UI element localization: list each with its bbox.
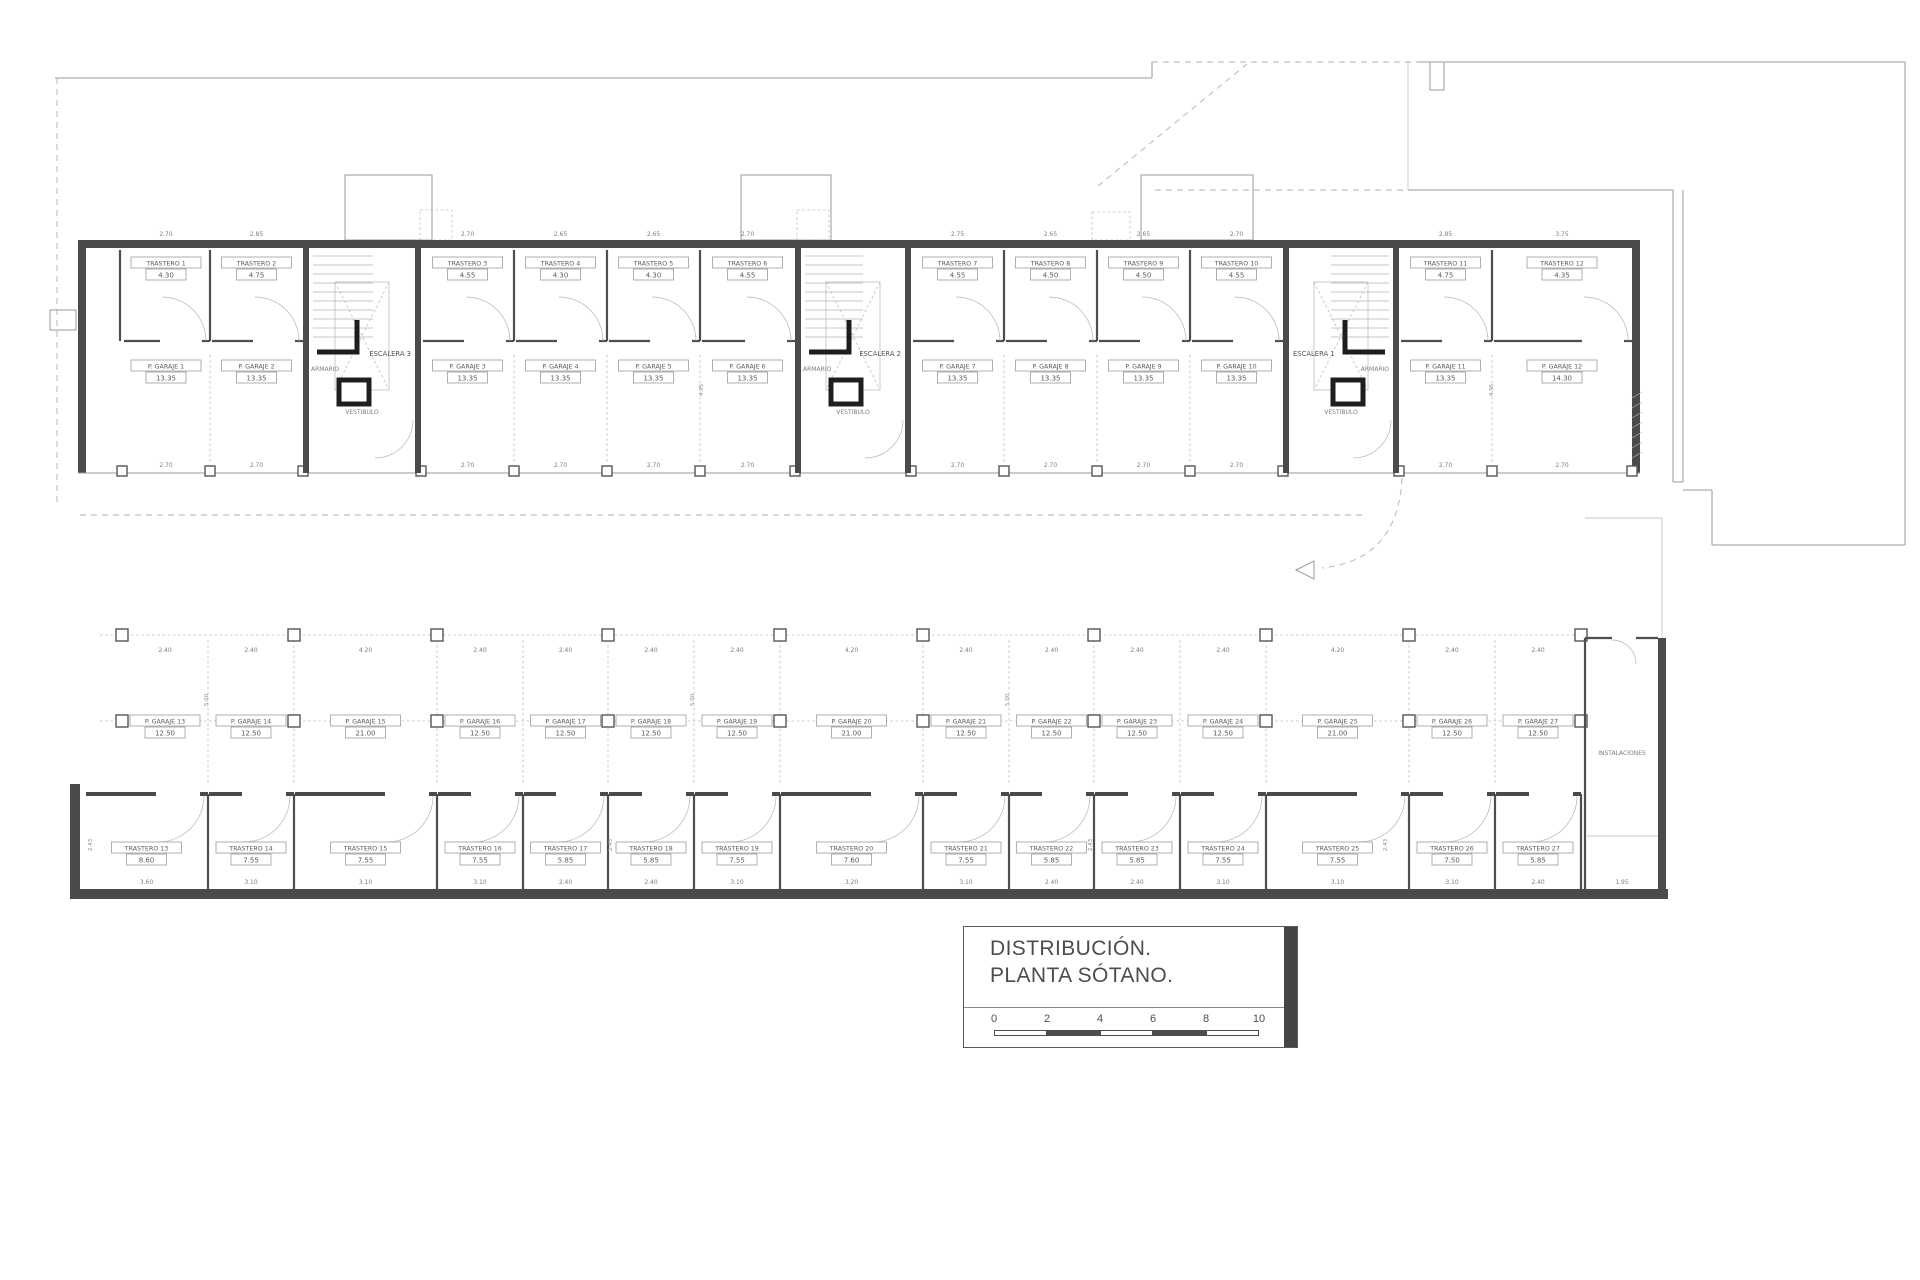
- room-name: P. GARAJE 9: [1125, 363, 1161, 370]
- room-area: 7.60: [844, 857, 860, 865]
- room-name: P. GARAJE 13: [145, 718, 185, 725]
- door-arc: [959, 796, 1005, 842]
- room-area: 21.00: [355, 730, 375, 738]
- dimension-label: 2.65: [1044, 231, 1058, 238]
- room-area: 4.75: [1438, 272, 1454, 280]
- room-area: 4.50: [1136, 272, 1152, 280]
- elevator: [1333, 380, 1363, 404]
- wall: [809, 320, 849, 352]
- door-arc: [1235, 297, 1279, 341]
- room-area: 12.50: [1442, 730, 1462, 738]
- room-area: 4.55: [460, 272, 476, 280]
- room-area: 5.85: [1044, 857, 1060, 865]
- room-area: 4.30: [646, 272, 662, 280]
- room-area: 4.55: [950, 272, 966, 280]
- dimension-label: 2.70: [741, 231, 755, 238]
- dimension-label: 3.60: [140, 879, 154, 886]
- dimension-label: 3.10: [359, 879, 373, 886]
- dimension-label: 2.40: [559, 647, 573, 654]
- pillar: [116, 629, 128, 641]
- pillar: [602, 629, 614, 641]
- room-name: P. GARAJE 3: [449, 363, 485, 370]
- room-area: 7.55: [358, 857, 374, 865]
- room-area: 13.35: [457, 375, 477, 383]
- door-arc: [1612, 640, 1636, 664]
- driving-aisle: [80, 478, 1402, 579]
- dimension-label: 4.20: [1331, 647, 1345, 654]
- room-area: 8.60: [139, 857, 155, 865]
- skylight-dashed: [1092, 212, 1130, 240]
- dimension-label: 2.40: [1531, 647, 1545, 654]
- room-name: TRASTERO 2: [236, 260, 276, 267]
- room-name: P. GARAJE 11: [1425, 363, 1465, 370]
- vestibulo-label: VESTIBULO: [345, 409, 379, 416]
- dimension-label: 2.70: [250, 462, 264, 469]
- room-area: 5.85: [1530, 857, 1546, 865]
- dimension-label: 2.65: [1137, 231, 1151, 238]
- door-arc: [1049, 297, 1093, 341]
- dimension-label: 2.43: [88, 838, 94, 851]
- dimension-label: 2.40: [1130, 879, 1144, 886]
- room-name: TRASTERO 14: [228, 845, 272, 852]
- room-name: TRASTERO 5: [633, 260, 673, 267]
- instalaciones-room: INSTALACIONES1.95: [1585, 518, 1666, 889]
- room-name: TRASTERO 9: [1123, 260, 1163, 267]
- dimension-label: 2.40: [644, 647, 658, 654]
- dimension-label: 3.10: [473, 879, 487, 886]
- wall: [1632, 240, 1640, 473]
- pillar: [1627, 466, 1637, 476]
- dimension-label: 2.70: [1137, 462, 1151, 469]
- dimension-label: 2.70: [1044, 462, 1058, 469]
- room-name: P. GARAJE 10: [1216, 363, 1256, 370]
- room-name: TRASTERO 1: [145, 260, 185, 267]
- wall: [303, 248, 309, 473]
- armario-label: ARMARIO: [1361, 366, 1389, 373]
- dimension-label: 2.70: [1230, 462, 1244, 469]
- drawing-title-line1: DISTRIBUCIÓN.: [990, 935, 1173, 962]
- room-name: TRASTERO 17: [543, 845, 587, 852]
- dimension-label: 2.70: [461, 231, 475, 238]
- room-name: TRASTERO 22: [1029, 845, 1073, 852]
- room-name: TRASTERO 13: [124, 845, 168, 852]
- room-name: P. GARAJE 26: [1432, 718, 1472, 725]
- pillar: [1260, 715, 1272, 727]
- room-area: 7.55: [958, 857, 974, 865]
- wall: [317, 320, 357, 352]
- roof-bump: [741, 175, 831, 240]
- room-area: 13.35: [1226, 375, 1246, 383]
- dimension-label: 2.40: [1045, 879, 1059, 886]
- room-area: 7.55: [472, 857, 488, 865]
- drawing-title-line2: PLANTA SÓTANO.: [990, 962, 1173, 989]
- door-arc: [865, 420, 903, 458]
- drawing-title: DISTRIBUCIÓN. PLANTA SÓTANO.: [990, 935, 1173, 989]
- armario-label: ARMARIO: [311, 366, 339, 373]
- room-name: P. GARAJE 24: [1203, 718, 1243, 725]
- bottom-band: TRASTERO 138.603.60TRASTERO 147.553.10TR…: [70, 784, 1668, 899]
- room-name: P. GARAJE 8: [1032, 363, 1068, 370]
- room-name: TRASTERO 19: [714, 845, 758, 852]
- room-name: TRASTERO 10: [1214, 260, 1258, 267]
- wall: [1345, 320, 1385, 352]
- pillar: [917, 629, 929, 641]
- boundary-tick: [1430, 62, 1444, 90]
- room-area: 7.50: [1444, 857, 1460, 865]
- pillar: [1403, 715, 1415, 727]
- dimension-label: 2.85: [1439, 231, 1453, 238]
- room-area: 4.50: [1043, 272, 1059, 280]
- dimension-label: 2.40: [644, 879, 658, 886]
- room-name: TRASTERO 27: [1515, 845, 1559, 852]
- pillar: [1088, 629, 1100, 641]
- scale-bar: 0 2 4 6 8 10: [994, 1013, 1260, 1043]
- dimension-label: 2.40: [730, 647, 744, 654]
- room-area: 13.35: [643, 375, 663, 383]
- room-name: TRASTERO 12: [1539, 260, 1583, 267]
- door-arc: [1584, 297, 1628, 341]
- scale-bar-segments: [994, 1030, 1259, 1036]
- pillar: [288, 629, 300, 641]
- room-name: TRASTERO 6: [727, 260, 767, 267]
- dimension-label: 3.10: [1445, 879, 1459, 886]
- dimension-label: 2.75: [951, 231, 965, 238]
- dimension-label: 3.10: [244, 879, 258, 886]
- room-area: 14.30: [1552, 375, 1572, 383]
- wall: [795, 248, 801, 473]
- room-name: P. GARAJE 16: [460, 718, 500, 725]
- pillar: [602, 466, 612, 476]
- wall-marker: [50, 310, 76, 330]
- scale-number: 0: [991, 1013, 997, 1025]
- dimension-label: 2.40: [559, 879, 573, 886]
- ramp-arrow-icon: [1296, 561, 1314, 579]
- door-arc: [1216, 796, 1262, 842]
- room-area: 12.50: [155, 730, 175, 738]
- door-arc: [873, 796, 919, 842]
- dimension-label: 2.40: [1216, 647, 1230, 654]
- room-name: TRASTERO 7: [937, 260, 977, 267]
- title-block-fold-bar: [1284, 927, 1297, 1047]
- skylight-dashed: [797, 210, 829, 240]
- room-name: P. GARAJE 19: [717, 718, 757, 725]
- room-name: TRASTERO 15: [343, 845, 387, 852]
- wall: [70, 889, 1668, 899]
- room-area: 12.50: [470, 730, 490, 738]
- dimension-label: 2.40: [1045, 647, 1059, 654]
- dimension-label: 2.65: [647, 231, 661, 238]
- stair-label: ESCALERA 1: [1293, 350, 1335, 358]
- skylight-dashed: [420, 210, 452, 240]
- room-area: 13.35: [246, 375, 266, 383]
- room-name: P. GARAJE 27: [1518, 718, 1558, 725]
- room-name: TRASTERO 24: [1200, 845, 1244, 852]
- room-area: 13.35: [550, 375, 570, 383]
- wall: [78, 240, 86, 473]
- elevator: [339, 380, 369, 404]
- pillar: [602, 715, 614, 727]
- door-arc: [244, 796, 290, 842]
- pillar: [999, 466, 1009, 476]
- pillar: [509, 466, 519, 476]
- wall: [905, 248, 911, 473]
- room-area: 7.55: [1215, 857, 1231, 865]
- boundary-dashed-line: [1098, 64, 1247, 186]
- pillar: [288, 715, 300, 727]
- pillar: [431, 715, 443, 727]
- title-block-divider: [964, 1007, 1284, 1008]
- dimension-label: 2.70: [159, 231, 173, 238]
- room-area: 21.00: [841, 730, 861, 738]
- dimension-label: 2.70: [1555, 462, 1569, 469]
- room-area: 12.50: [641, 730, 661, 738]
- stair-label: ESCALERA 2: [859, 350, 901, 358]
- scale-number: 2: [1044, 1013, 1050, 1025]
- room-area: 12.50: [1127, 730, 1147, 738]
- floor-plan-canvas: 2.70TRASTERO 14.30P. GARAJE 113.352.702.…: [0, 0, 1920, 1280]
- room-name: P. GARAJE 18: [631, 718, 671, 725]
- dimension-label: 3.20: [845, 879, 859, 886]
- room-area: 12.50: [727, 730, 747, 738]
- dimension-label: 2.43: [1088, 838, 1094, 851]
- room-area: 12.50: [956, 730, 976, 738]
- room-area: 7.55: [729, 857, 745, 865]
- door-arc: [375, 420, 413, 458]
- door-arc: [466, 297, 510, 341]
- roof-bump: [345, 175, 432, 240]
- room-area: 12.50: [1213, 730, 1233, 738]
- pillar: [695, 466, 705, 476]
- dimension-label: 2.70: [741, 462, 755, 469]
- door-arc: [558, 796, 604, 842]
- dimension-label: 2.70: [1439, 462, 1453, 469]
- room-name: TRASTERO 20: [829, 845, 873, 852]
- pillar: [117, 466, 127, 476]
- dimension-label: 3.75: [1555, 231, 1569, 238]
- pillar: [1088, 715, 1100, 727]
- door-arc: [158, 796, 204, 842]
- dimension-label: 4.20: [845, 647, 859, 654]
- room-area: 13.35: [947, 375, 967, 383]
- scale-number: 4: [1097, 1013, 1103, 1025]
- instalaciones-label: INSTALACIONES: [1598, 750, 1646, 757]
- dimension-label: 2.70: [951, 462, 965, 469]
- title-block: DISTRIBUCIÓN. PLANTA SÓTANO. 0 2 4 6 8 1…: [963, 926, 1298, 1048]
- dimension-label: 2.43: [608, 838, 614, 851]
- room-name: TRASTERO 26: [1429, 845, 1473, 852]
- room-area: 4.55: [740, 272, 756, 280]
- room-name: P. GARAJE 1: [148, 363, 184, 370]
- dimension-label: 2.43: [1383, 838, 1389, 851]
- room-area: 7.55: [1330, 857, 1346, 865]
- dimension-label: 2.70: [159, 462, 173, 469]
- dimension-label: 3.10: [959, 879, 973, 886]
- room-area: 13.35: [1435, 375, 1455, 383]
- door-arc: [730, 796, 776, 842]
- pillar: [1260, 629, 1272, 641]
- stair-label: ESCALERA 3: [369, 350, 411, 358]
- door-arc: [387, 796, 433, 842]
- dimension-label: 2.70: [1230, 231, 1244, 238]
- room-area: 21.00: [1327, 730, 1347, 738]
- dimension-label: 2.40: [244, 647, 258, 654]
- dimension-label: 3.10: [1331, 879, 1345, 886]
- pillar: [1403, 629, 1415, 641]
- elevator: [831, 380, 861, 404]
- room-area: 13.35: [156, 375, 176, 383]
- scale-number: 8: [1203, 1013, 1209, 1025]
- room-name: P. GARAJE 23: [1117, 718, 1157, 725]
- room-name: TRASTERO 11: [1423, 260, 1467, 267]
- room-area: 13.35: [1040, 375, 1060, 383]
- room-name: P. GARAJE 4: [542, 363, 578, 370]
- room-area: 5.85: [643, 857, 659, 865]
- room-area: 4.30: [158, 272, 174, 280]
- room-area: 13.35: [737, 375, 757, 383]
- dimension-label: 2.85: [250, 231, 264, 238]
- pillar: [205, 466, 215, 476]
- pillar: [116, 715, 128, 727]
- door-arc: [747, 297, 791, 341]
- room-name: P. GARAJE 12: [1542, 363, 1582, 370]
- dimension-label: 2.40: [1445, 647, 1459, 654]
- scale-number: 6: [1150, 1013, 1156, 1025]
- wall: [1283, 248, 1289, 473]
- dimension-label: 2.40: [1130, 647, 1144, 654]
- dimension-label: 2.70: [461, 462, 475, 469]
- dimension-label: 5.00: [204, 693, 210, 706]
- wall: [70, 784, 80, 899]
- room-name: TRASTERO 4: [540, 260, 580, 267]
- door-arc: [255, 297, 299, 341]
- room-area: 12.50: [1528, 730, 1548, 738]
- room-area: 4.55: [1229, 272, 1245, 280]
- room-name: P. GARAJE 20: [831, 718, 871, 725]
- door-arc: [956, 297, 1000, 341]
- dimension-label: 2.40: [959, 647, 973, 654]
- room-name: P. GARAJE 2: [238, 363, 274, 370]
- middle-band: 2.40P. GARAJE 1312.502.40P. GARAJE 1412.…: [100, 629, 1587, 786]
- room-name: TRASTERO 16: [457, 845, 501, 852]
- room-area: 13.35: [1133, 375, 1153, 383]
- dimension-label: 3.10: [1216, 879, 1230, 886]
- room-name: P. GARAJE 5: [635, 363, 671, 370]
- door-arc: [1044, 796, 1090, 842]
- vestibulo-label: VESTIBULO: [1324, 409, 1358, 416]
- room-name: P. GARAJE 6: [729, 363, 765, 370]
- dimension-label: 2.40: [473, 647, 487, 654]
- dimension-label: 2.40: [1531, 879, 1545, 886]
- door-arc: [1130, 796, 1176, 842]
- dimension-label: 2.40: [158, 647, 172, 654]
- wall: [1393, 248, 1399, 473]
- wall: [78, 240, 1640, 248]
- room-area: 4.75: [249, 272, 265, 280]
- dimension-label: 4.95: [1489, 383, 1495, 396]
- pillar: [431, 629, 443, 641]
- vestibulo-label: VESTIBULO: [836, 409, 870, 416]
- dimension-label: 2.65: [554, 231, 568, 238]
- room-area: 5.85: [558, 857, 574, 865]
- door-arc: [1142, 297, 1186, 341]
- door-arc: [1445, 796, 1491, 842]
- pillar: [1487, 466, 1497, 476]
- room-area: 12.50: [241, 730, 261, 738]
- ramp-path: [1322, 478, 1402, 568]
- door-arc: [644, 796, 690, 842]
- dimension-label: 5.00: [690, 693, 696, 706]
- dimension-label: 2.70: [554, 462, 568, 469]
- wall: [1658, 638, 1666, 889]
- door-arc: [1531, 796, 1577, 842]
- room-area: 4.35: [1554, 272, 1570, 280]
- room-name: P. GARAJE 25: [1317, 718, 1357, 725]
- room-area: 5.85: [1129, 857, 1145, 865]
- room-name: P. GARAJE 21: [946, 718, 986, 725]
- door-arc: [652, 297, 696, 341]
- room-area: 12.50: [555, 730, 575, 738]
- pillar: [917, 715, 929, 727]
- dimension-label: 1.95: [1615, 879, 1629, 886]
- stair-core: ESCALERA 1ARMARIOVESTIBULO: [1283, 248, 1399, 473]
- door-arc: [162, 297, 206, 341]
- armario-label: ARMARIO: [803, 366, 831, 373]
- room-name: TRASTERO 21: [943, 845, 987, 852]
- room-name: P. GARAJE 7: [939, 363, 975, 370]
- stair-core: ESCALERA 2ARMARIOVESTIBULO: [795, 248, 911, 473]
- room-name: TRASTERO 25: [1315, 845, 1359, 852]
- stair-core: ESCALERA 3ARMARIOVESTIBULO: [303, 248, 421, 473]
- room-name: P. GARAJE 14: [231, 718, 271, 725]
- door-arc: [1359, 796, 1405, 842]
- dimension-label: 4.20: [359, 647, 373, 654]
- room-name: P. GARAJE 17: [545, 718, 585, 725]
- dimension-label: 5.00: [1005, 693, 1011, 706]
- dimension-label: 2.70: [647, 462, 661, 469]
- room-area: 12.50: [1041, 730, 1061, 738]
- dimension-label: 3.10: [730, 879, 744, 886]
- room-name: P. GARAJE 15: [345, 718, 385, 725]
- floor-plan-page: 2.70TRASTERO 14.30P. GARAJE 113.352.702.…: [0, 0, 1920, 1280]
- pillar: [1185, 466, 1195, 476]
- room-area: 7.55: [243, 857, 259, 865]
- pillar: [1092, 466, 1102, 476]
- pillar: [774, 715, 786, 727]
- dimension-label: 4.95: [699, 383, 705, 396]
- room-name: TRASTERO 18: [628, 845, 672, 852]
- room-area: 4.30: [553, 272, 569, 280]
- door-arc: [1353, 420, 1391, 458]
- door-arc: [1444, 297, 1488, 341]
- pillar: [774, 629, 786, 641]
- door-arc: [473, 796, 519, 842]
- room-name: TRASTERO 3: [447, 260, 487, 267]
- room-name: P. GARAJE 22: [1031, 718, 1071, 725]
- room-name: TRASTERO 8: [1030, 260, 1070, 267]
- room-name: TRASTERO 23: [1114, 845, 1158, 852]
- scale-number: 10: [1253, 1013, 1265, 1025]
- wall: [415, 248, 421, 473]
- door-arc: [559, 297, 603, 341]
